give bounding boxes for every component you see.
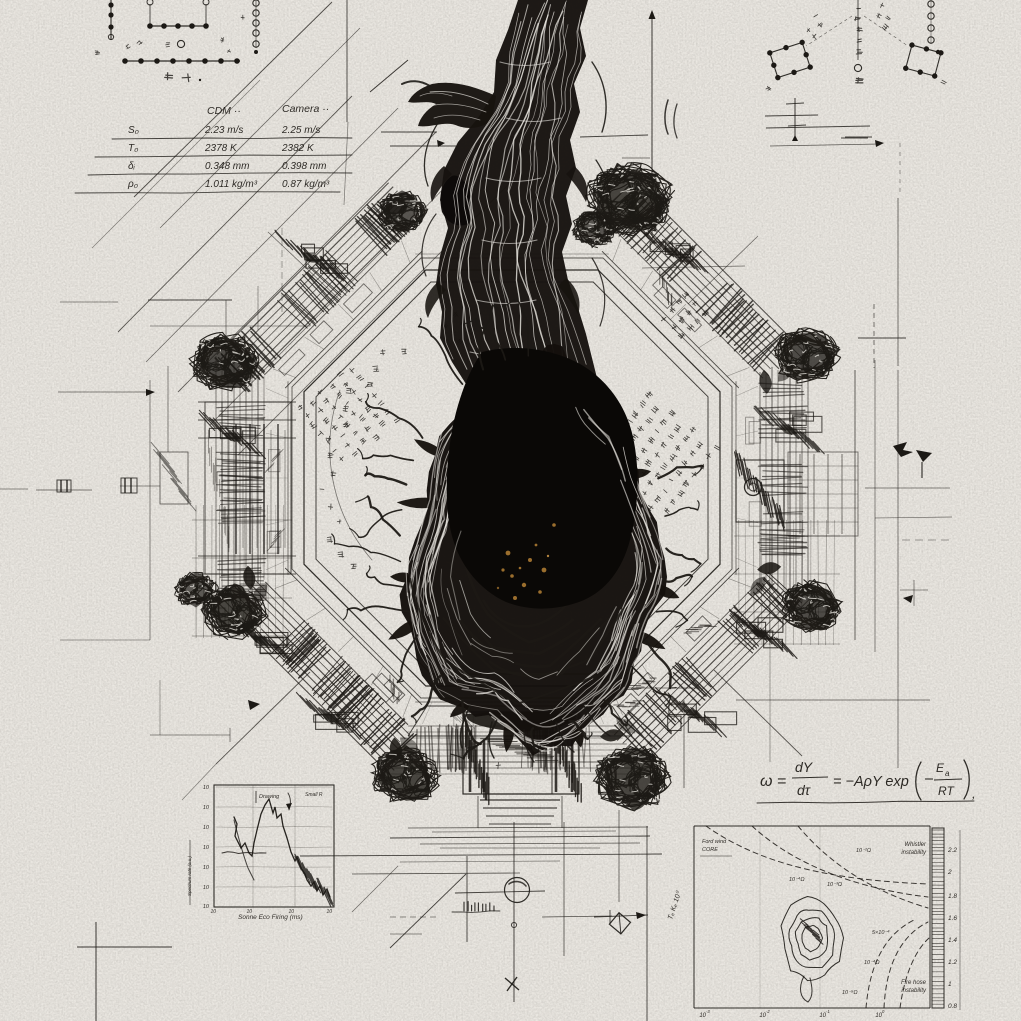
svg-text:Drawing: Drawing [259, 794, 280, 800]
svg-text:1.6: 1.6 [948, 915, 957, 922]
svg-text:RT: RT [938, 784, 955, 798]
svg-text:-1: -1 [826, 1009, 830, 1014]
svg-text:1: 1 [948, 981, 952, 988]
svg-text:ρ₀: ρ₀ [127, 179, 138, 190]
svg-text:10⁻²Ω: 10⁻²Ω [856, 848, 871, 854]
svg-text:2.2: 2.2 [947, 847, 957, 854]
svg-text:a: a [945, 769, 950, 778]
svg-text:T₀: T₀ [128, 143, 138, 154]
svg-text:instability: instability [901, 988, 927, 994]
svg-text:10: 10 [326, 909, 332, 915]
svg-text:0.87 kg/m³: 0.87 kg/m³ [282, 179, 330, 190]
svg-text:S₀: S₀ [128, 125, 139, 136]
svg-text:10: 10 [203, 904, 210, 910]
svg-text:2382 K: 2382 K [281, 143, 315, 154]
svg-text:Camera ··: Camera ·· [282, 103, 329, 115]
svg-text:dY: dY [795, 759, 814, 775]
svg-text:2.25 m/s: 2.25 m/s [281, 125, 320, 136]
svg-text:10: 10 [203, 885, 210, 891]
svg-text:10: 10 [288, 909, 294, 915]
svg-text:0.348 mm: 0.348 mm [205, 161, 249, 172]
svg-text:= −AρY exp: = −AρY exp [833, 774, 909, 790]
svg-text:10: 10 [210, 909, 216, 915]
svg-text:1.8: 1.8 [948, 893, 957, 900]
svg-text:10⁻⁴Ω: 10⁻⁴Ω [789, 876, 805, 883]
svg-text:10: 10 [203, 825, 210, 831]
svg-text:0.8: 0.8 [948, 1003, 957, 1010]
svg-text:5×10⁻⁴: 5×10⁻⁴ [872, 929, 890, 936]
svg-text:10: 10 [203, 865, 210, 871]
svg-text:1.2: 1.2 [948, 959, 957, 966]
svg-text:10⁻³Ω: 10⁻³Ω [827, 882, 842, 888]
svg-text:Whistler: Whistler [904, 842, 927, 848]
svg-text:E: E [936, 761, 945, 775]
svg-text:Fire hose: Fire hose [901, 980, 927, 986]
svg-text:1.011 kg/m³: 1.011 kg/m³ [205, 179, 258, 190]
svg-text:1.4: 1.4 [948, 937, 957, 944]
svg-text:Sonne Eco Firing (ms): Sonne Eco Firing (ms) [238, 914, 303, 921]
svg-text:CORE: CORE [702, 847, 718, 853]
svg-text:10: 10 [203, 845, 210, 851]
svg-text:0.398 mm: 0.398 mm [282, 161, 326, 172]
svg-text:,: , [972, 786, 976, 801]
svg-text:10⁻⁵Ω: 10⁻⁵Ω [842, 989, 858, 996]
svg-text:2378 K: 2378 K [204, 143, 238, 154]
svg-text:ω =: ω = [760, 773, 786, 790]
svg-text:δᵢ: δᵢ [128, 161, 136, 172]
svg-text:10: 10 [203, 805, 210, 811]
svg-text:2: 2 [947, 869, 952, 876]
svg-text:instability: instability [901, 850, 927, 856]
svg-text:Small R: Small R [305, 792, 323, 798]
svg-text:10: 10 [246, 909, 252, 915]
svg-text:10⁻⁴Ω: 10⁻⁴Ω [864, 959, 880, 966]
svg-text:10: 10 [203, 785, 210, 791]
svg-text:dτ: dτ [797, 782, 811, 798]
svg-text:Ford wind: Ford wind [702, 839, 727, 845]
svg-text:Spectrum rate (a.u.): Spectrum rate (a.u.) [187, 855, 192, 896]
svg-text:CDM ··: CDM ·· [207, 105, 241, 117]
svg-text:2.23 m/s: 2.23 m/s [204, 125, 243, 136]
